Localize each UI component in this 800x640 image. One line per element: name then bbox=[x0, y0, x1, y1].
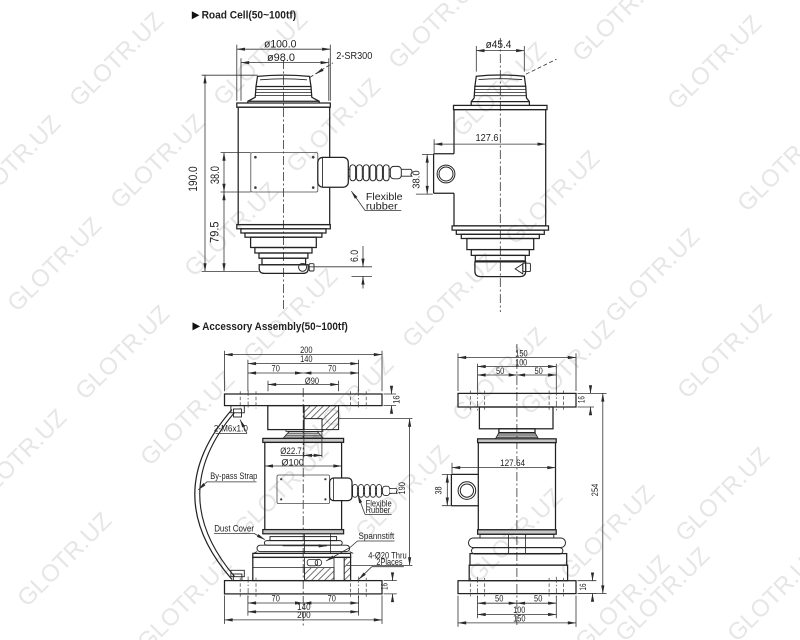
svg-text:50: 50 bbox=[496, 366, 504, 376]
svg-text:50: 50 bbox=[495, 594, 503, 604]
svg-text:Ø22.7: Ø22.7 bbox=[280, 446, 302, 456]
svg-text:ø98.0: ø98.0 bbox=[267, 52, 295, 64]
svg-text:127.64: 127.64 bbox=[500, 458, 525, 468]
svg-text:79.5: 79.5 bbox=[209, 221, 222, 243]
svg-text:254: 254 bbox=[590, 484, 600, 496]
svg-text:38: 38 bbox=[433, 486, 443, 494]
svg-text:190: 190 bbox=[397, 482, 407, 494]
svg-text:16: 16 bbox=[391, 395, 401, 404]
svg-text:70: 70 bbox=[272, 593, 280, 603]
svg-text:190.0: 190.0 bbox=[187, 166, 200, 191]
svg-text:ø100.0: ø100.0 bbox=[264, 39, 297, 51]
svg-text:127.6: 127.6 bbox=[476, 133, 499, 144]
svg-text:Ø100: Ø100 bbox=[281, 457, 303, 467]
svg-text:140: 140 bbox=[300, 354, 312, 364]
svg-text:38.0: 38.0 bbox=[209, 166, 222, 184]
svg-text:16: 16 bbox=[380, 583, 390, 590]
svg-text:Accessory Assembly(50~100tf): Accessory Assembly(50~100tf) bbox=[202, 321, 348, 333]
svg-text:70: 70 bbox=[272, 364, 280, 374]
svg-text:16: 16 bbox=[578, 583, 588, 590]
svg-text:50: 50 bbox=[534, 366, 542, 376]
svg-text:70: 70 bbox=[328, 593, 336, 603]
svg-text:Spannstift: Spannstift bbox=[359, 531, 395, 541]
svg-text:6.0: 6.0 bbox=[349, 250, 361, 262]
svg-text:By-pass Strap: By-pass Strap bbox=[210, 471, 257, 481]
svg-text:2-SR300: 2-SR300 bbox=[336, 51, 372, 62]
svg-text:Dust Cover: Dust Cover bbox=[214, 523, 254, 533]
svg-text:50: 50 bbox=[534, 594, 542, 604]
svg-text:38.0: 38.0 bbox=[412, 170, 423, 188]
svg-text:2-M6x1.0: 2-M6x1.0 bbox=[214, 424, 248, 434]
svg-text:200: 200 bbox=[297, 610, 311, 620]
svg-text:70: 70 bbox=[328, 364, 336, 374]
svg-text:Road Cell(50~100tf): Road Cell(50~100tf) bbox=[202, 9, 297, 21]
svg-text:ø45.4: ø45.4 bbox=[486, 39, 512, 51]
svg-text:Rubber: Rubber bbox=[366, 505, 391, 515]
svg-text:2Places: 2Places bbox=[376, 557, 403, 567]
svg-text:150: 150 bbox=[513, 613, 525, 623]
svg-text:rubber: rubber bbox=[366, 201, 398, 212]
svg-text:Ø90: Ø90 bbox=[305, 376, 319, 386]
svg-text:16: 16 bbox=[577, 396, 587, 403]
svg-text:100: 100 bbox=[515, 358, 527, 368]
